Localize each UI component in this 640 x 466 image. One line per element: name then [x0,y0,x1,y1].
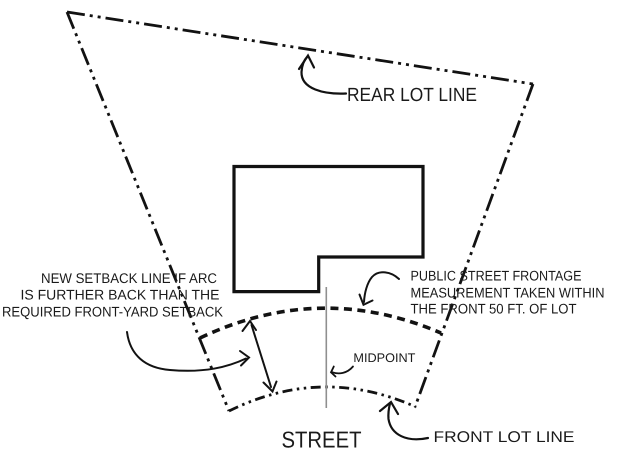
svg-text:PUBLIC STREET FRONTAGE: PUBLIC STREET FRONTAGE [411,268,582,284]
svg-text:MIDPOINT: MIDPOINT [353,351,415,365]
svg-text:MEASUREMENT TAKEN WITHIN: MEASUREMENT TAKEN WITHIN [411,285,605,301]
svg-text:STREET: STREET [282,427,362,453]
svg-text:REQUIRED FRONT-YARD SETBACK: REQUIRED FRONT-YARD SETBACK [2,303,224,319]
svg-text:FRONT LOT LINE: FRONT LOT LINE [434,429,575,446]
svg-text:THE FRONT 50 FT. OF LOT: THE FRONT 50 FT. OF LOT [411,301,577,317]
svg-text:IS FURTHER BACK THAN THE: IS FURTHER BACK THAN THE [21,287,220,303]
svg-text:REAR LOT LINE: REAR LOT LINE [347,85,477,106]
svg-text:NEW SETBACK LINE IF ARC: NEW SETBACK LINE IF ARC [41,270,217,286]
